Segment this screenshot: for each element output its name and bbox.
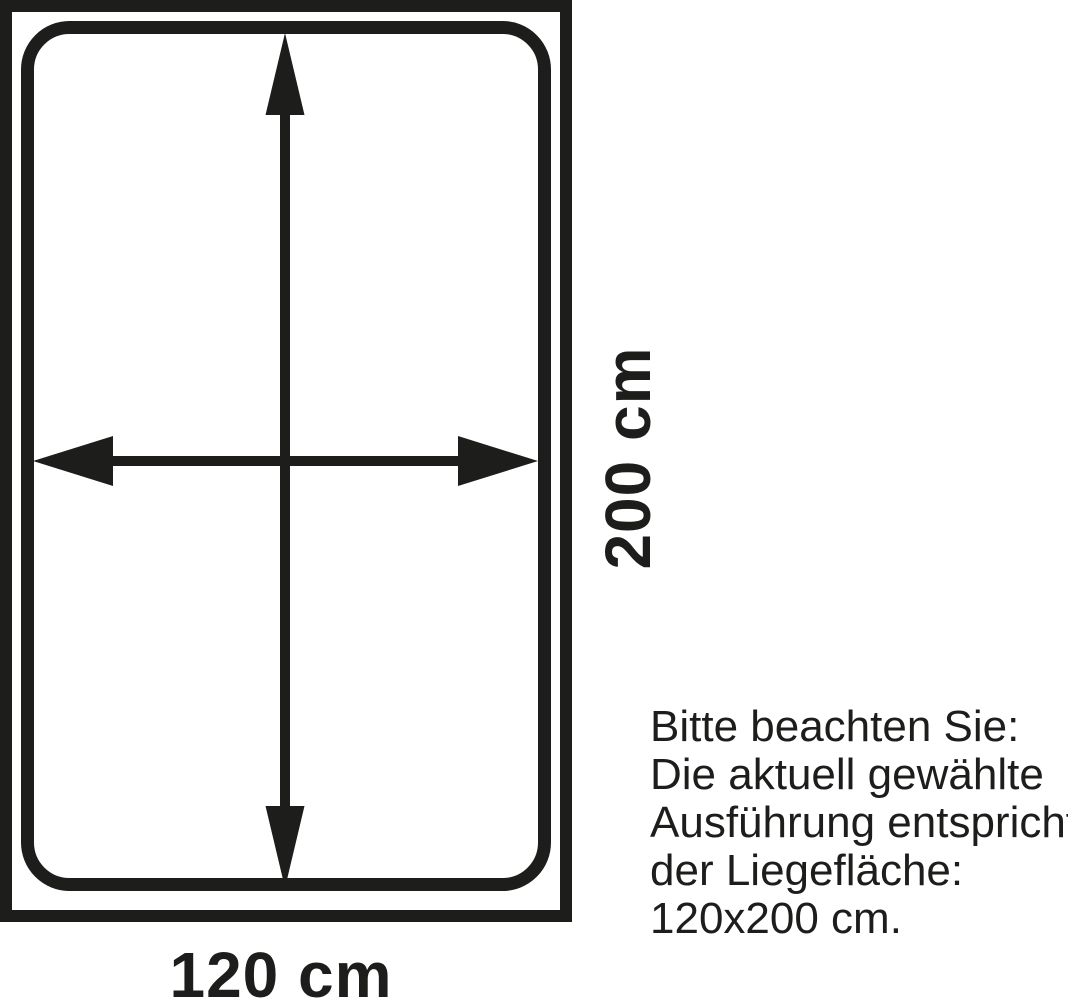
note-line: Ausführung entspricht xyxy=(650,799,1068,847)
note-line: Bitte beachten Sie: xyxy=(650,703,1068,751)
note-line: 120x200 cm. xyxy=(650,895,1068,943)
note-text: Bitte beachten Sie: Die aktuell gewählte… xyxy=(650,703,1068,943)
note-line: der Liegefläche: xyxy=(650,847,1068,895)
height-label: 200 cm xyxy=(591,346,665,569)
width-label: 120 cm xyxy=(169,938,392,1000)
bed-dimension-diagram xyxy=(0,0,580,930)
product-dimension-figure: 200 cm 120 cm Bitte beachten Sie: Die ak… xyxy=(0,0,1068,1000)
note-line: Die aktuell gewählte xyxy=(650,751,1068,799)
